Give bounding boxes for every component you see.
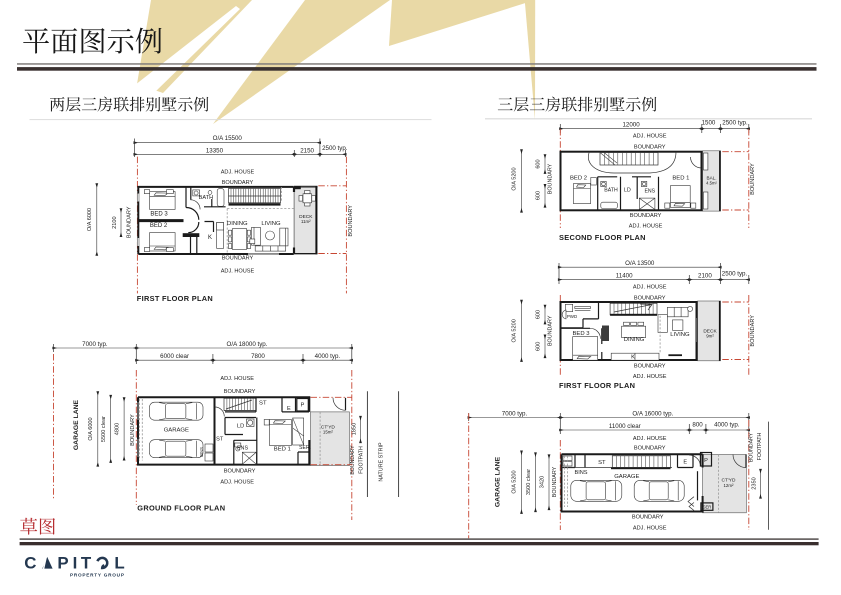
svg-text:ST: ST bbox=[598, 460, 606, 466]
svg-text:O/A 5200: O/A 5200 bbox=[512, 167, 518, 190]
svg-text:4.5m²: 4.5m² bbox=[706, 180, 717, 185]
svg-text:FIRST FLOOR PLAN: FIRST FLOOR PLAN bbox=[137, 294, 213, 303]
svg-text:2500 typ.: 2500 typ. bbox=[722, 270, 748, 277]
svg-text:BOUNDARY: BOUNDARY bbox=[552, 466, 558, 497]
svg-text:O/A 18000 typ.: O/A 18000 typ. bbox=[227, 341, 268, 348]
svg-text:LD: LD bbox=[624, 188, 631, 194]
svg-text:7000 typ.: 7000 typ. bbox=[82, 341, 108, 348]
svg-text:2350: 2350 bbox=[752, 477, 758, 489]
svg-text:FOOTPATH: FOOTPATH bbox=[757, 433, 763, 461]
svg-text:BED 3: BED 3 bbox=[572, 331, 590, 337]
svg-text:L: L bbox=[114, 554, 124, 573]
svg-text:ST: ST bbox=[216, 436, 224, 442]
svg-text:ENS: ENS bbox=[644, 189, 655, 195]
svg-text:BOUNDARY: BOUNDARY bbox=[634, 295, 666, 301]
svg-text:3500 clear: 3500 clear bbox=[526, 469, 532, 495]
svg-text:13350: 13350 bbox=[206, 148, 224, 155]
svg-text:BOUNDARY: BOUNDARY bbox=[222, 256, 254, 262]
svg-text:BOUNDARY: BOUNDARY bbox=[130, 414, 136, 446]
svg-text:ENS: ENS bbox=[237, 445, 248, 451]
svg-text:BINS: BINS bbox=[574, 470, 587, 476]
svg-text:BOUNDARY: BOUNDARY bbox=[222, 180, 254, 186]
svg-text:BINS: BINS bbox=[199, 447, 204, 457]
svg-text:SER.: SER. bbox=[299, 445, 311, 451]
svg-text:FOOTPATH: FOOTPATH bbox=[359, 446, 365, 474]
svg-text:P: P bbox=[57, 554, 68, 573]
svg-text:5500 clear: 5500 clear bbox=[101, 416, 107, 442]
svg-text:O/A 6000: O/A 6000 bbox=[87, 208, 93, 231]
svg-text:P: P bbox=[301, 403, 305, 409]
svg-text:600: 600 bbox=[536, 191, 542, 200]
svg-text:GARAGE: GARAGE bbox=[164, 427, 189, 433]
svg-text:1850: 1850 bbox=[352, 423, 358, 435]
svg-text:ADJ. HOUSE: ADJ. HOUSE bbox=[220, 376, 254, 382]
svg-text:O/A 15500: O/A 15500 bbox=[213, 135, 243, 142]
svg-text:BOUNDARY: BOUNDARY bbox=[750, 315, 756, 347]
svg-text:ADJ. HOUSE: ADJ. HOUSE bbox=[221, 268, 255, 274]
svg-text:600: 600 bbox=[536, 159, 542, 168]
svg-text:BOUNDARY: BOUNDARY bbox=[348, 205, 354, 237]
svg-text:BED 2: BED 2 bbox=[570, 175, 587, 181]
svg-text:GARAGE LANE: GARAGE LANE bbox=[73, 399, 80, 450]
svg-text:ADJ. HOUSE: ADJ. HOUSE bbox=[629, 224, 663, 230]
svg-text:1500: 1500 bbox=[702, 119, 716, 126]
svg-text:7000 typ.: 7000 typ. bbox=[502, 410, 528, 417]
svg-text:2100: 2100 bbox=[112, 216, 118, 228]
svg-text:LD: LD bbox=[237, 423, 244, 429]
svg-text:T: T bbox=[81, 554, 92, 573]
svg-text:ADJ. HOUSE: ADJ. HOUSE bbox=[220, 480, 254, 486]
svg-text:O/A 6000: O/A 6000 bbox=[88, 417, 94, 440]
svg-text:I: I bbox=[73, 554, 78, 573]
svg-text:BOUNDARY: BOUNDARY bbox=[632, 515, 664, 521]
svg-text:2500 typ.: 2500 typ. bbox=[322, 145, 348, 152]
svg-text:4800: 4800 bbox=[115, 423, 121, 435]
svg-text:2150: 2150 bbox=[300, 148, 314, 155]
svg-text:BOUNDARY: BOUNDARY bbox=[634, 446, 666, 452]
svg-text:E: E bbox=[287, 406, 291, 412]
svg-text:C: C bbox=[24, 554, 36, 573]
svg-text:DINING: DINING bbox=[227, 221, 248, 227]
svg-text:FIRST FLOOR PLAN: FIRST FLOOR PLAN bbox=[559, 381, 635, 390]
svg-text:BATH: BATH bbox=[199, 195, 214, 201]
svg-text:NATURE STRIP: NATURE STRIP bbox=[379, 442, 385, 482]
svg-text:15m²: 15m² bbox=[323, 430, 334, 435]
svg-text:12m²: 12m² bbox=[723, 483, 734, 488]
svg-text:9m²: 9m² bbox=[706, 334, 714, 339]
svg-text:PROPERTY GROUP: PROPERTY GROUP bbox=[70, 572, 125, 577]
svg-text:BOUNDARY: BOUNDARY bbox=[224, 469, 256, 475]
svg-text:GARAGE: GARAGE bbox=[614, 474, 639, 480]
svg-text:4000 typ.: 4000 typ. bbox=[714, 421, 740, 428]
svg-text:K: K bbox=[631, 354, 635, 360]
svg-text:600: 600 bbox=[536, 310, 542, 319]
svg-text:O/A 5200: O/A 5200 bbox=[512, 319, 518, 342]
svg-text:BOUNDARY: BOUNDARY bbox=[634, 363, 666, 369]
svg-text:BOUNDARY: BOUNDARY bbox=[127, 206, 133, 238]
svg-text:PWD: PWD bbox=[567, 314, 577, 319]
svg-text:BOUNDARY: BOUNDARY bbox=[630, 213, 662, 219]
svg-text:LIVING: LIVING bbox=[670, 332, 690, 338]
svg-text:600: 600 bbox=[536, 342, 542, 351]
svg-text:BOUNDARY: BOUNDARY bbox=[548, 163, 554, 194]
svg-text:6000 clear: 6000 clear bbox=[160, 353, 189, 360]
svg-text:O/A 13500: O/A 13500 bbox=[625, 260, 655, 267]
svg-text:BOUNDARY: BOUNDARY bbox=[350, 445, 356, 475]
svg-text:2500 typ.: 2500 typ. bbox=[722, 119, 748, 126]
svg-text:P: P bbox=[704, 458, 708, 464]
svg-text:DINING: DINING bbox=[624, 337, 645, 343]
svg-text:ADJ. HOUSE: ADJ. HOUSE bbox=[221, 170, 255, 176]
svg-text:BOUNDARY: BOUNDARY bbox=[634, 145, 666, 151]
svg-text:LIVING: LIVING bbox=[261, 221, 281, 227]
svg-text:7800: 7800 bbox=[251, 353, 265, 360]
svg-text:4000 typ.: 4000 typ. bbox=[315, 353, 341, 360]
svg-text:11m²: 11m² bbox=[301, 219, 311, 224]
svg-text:ST: ST bbox=[259, 400, 267, 406]
svg-text:ADJ. HOUSE: ADJ. HOUSE bbox=[633, 374, 667, 380]
svg-text:ADJ. HOUSE: ADJ. HOUSE bbox=[633, 134, 667, 140]
svg-text:ADJ. HOUSE: ADJ. HOUSE bbox=[633, 285, 667, 291]
svg-text:BED 2: BED 2 bbox=[150, 223, 168, 229]
svg-text:2100: 2100 bbox=[698, 273, 712, 280]
svg-text:BOUNDARY: BOUNDARY bbox=[750, 163, 756, 195]
svg-text:800: 800 bbox=[692, 421, 703, 428]
svg-text:BOUNDARY: BOUNDARY bbox=[749, 432, 755, 462]
svg-text:BOUNDARY: BOUNDARY bbox=[548, 315, 554, 346]
svg-text:11000 clear: 11000 clear bbox=[609, 423, 641, 430]
svg-text:GARAGE LANE: GARAGE LANE bbox=[495, 456, 502, 507]
svg-text:E: E bbox=[683, 460, 687, 466]
svg-text:11400: 11400 bbox=[616, 273, 633, 280]
svg-text:BATH: BATH bbox=[604, 188, 618, 194]
svg-text:3420: 3420 bbox=[539, 476, 545, 488]
svg-text:BED 1: BED 1 bbox=[274, 447, 291, 453]
svg-text:GROUND FLOOR PLAN: GROUND FLOOR PLAN bbox=[137, 504, 225, 513]
svg-text:BED 3: BED 3 bbox=[150, 212, 168, 218]
svg-text:ADJ. HOUSE: ADJ. HOUSE bbox=[633, 436, 667, 442]
svg-text:K: K bbox=[208, 235, 212, 241]
svg-text:ADJ. HOUSE: ADJ. HOUSE bbox=[633, 526, 667, 532]
svg-text:SER: SER bbox=[703, 504, 712, 509]
svg-text:BOUNDARY: BOUNDARY bbox=[224, 389, 256, 395]
svg-text:12000: 12000 bbox=[622, 122, 640, 129]
svg-text:BED 1: BED 1 bbox=[672, 175, 689, 181]
svg-text:SECOND FLOOR PLAN: SECOND FLOOR PLAN bbox=[559, 233, 646, 242]
svg-text:O/A 16000 typ.: O/A 16000 typ. bbox=[632, 410, 673, 417]
svg-text:O/A 5200: O/A 5200 bbox=[512, 470, 518, 493]
